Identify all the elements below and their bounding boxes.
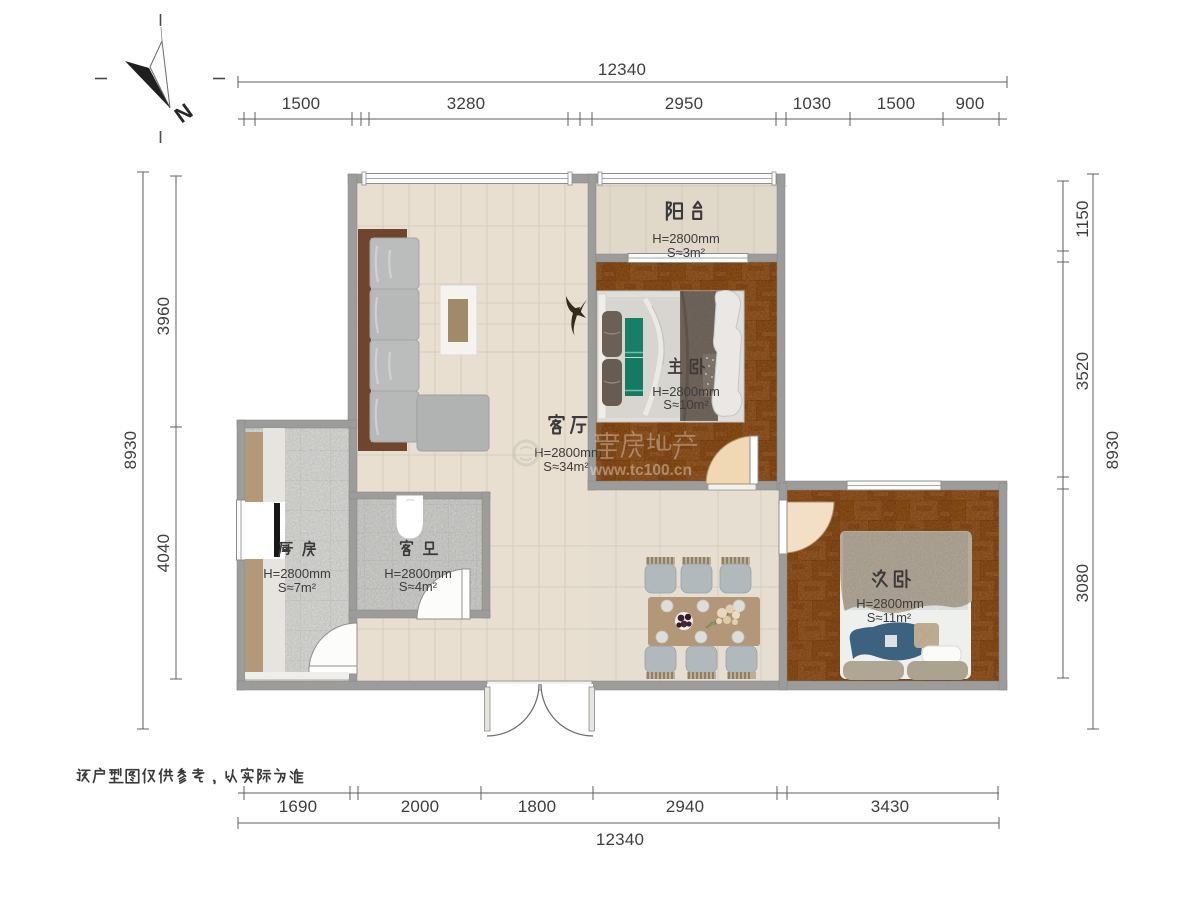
svg-text:8930: 8930 [1103,431,1122,470]
svg-text:1150: 1150 [1073,200,1092,237]
svg-text:12340: 12340 [596,830,644,849]
svg-text:1500: 1500 [877,94,916,113]
svg-text:H=2800mm: H=2800mm [534,445,602,460]
svg-text:H=2800mm: H=2800mm [263,566,331,581]
svg-text:3280: 3280 [447,94,486,113]
svg-text:2000: 2000 [401,797,440,816]
svg-text:1500: 1500 [282,94,321,113]
svg-text:2950: 2950 [665,94,704,113]
svg-text:8930: 8930 [121,431,140,470]
svg-text:www.tc100.cn: www.tc100.cn [589,462,692,479]
svg-text:S≈10m²: S≈10m² [663,397,709,412]
svg-text:3080: 3080 [1073,564,1092,603]
svg-text:4040: 4040 [154,534,173,573]
svg-text:3960: 3960 [154,297,173,336]
svg-text:2940: 2940 [666,797,705,816]
svg-text:1030: 1030 [793,94,832,113]
svg-text:3430: 3430 [871,797,910,816]
svg-text:H=2800mm: H=2800mm [652,231,720,246]
svg-text:S≈7m²: S≈7m² [278,580,317,595]
svg-text:H=2800mm: H=2800mm [856,596,924,611]
svg-text:1690: 1690 [279,797,318,816]
svg-text:S≈3m²: S≈3m² [667,245,706,260]
svg-text:3520: 3520 [1073,352,1092,391]
svg-text:1800: 1800 [518,797,557,816]
svg-text:S≈4m²: S≈4m² [399,579,438,594]
svg-text:900: 900 [956,94,985,113]
svg-text:12340: 12340 [598,60,646,79]
svg-text:S≈11m²: S≈11m² [867,610,912,625]
svg-text:S≈34m²: S≈34m² [543,459,589,474]
